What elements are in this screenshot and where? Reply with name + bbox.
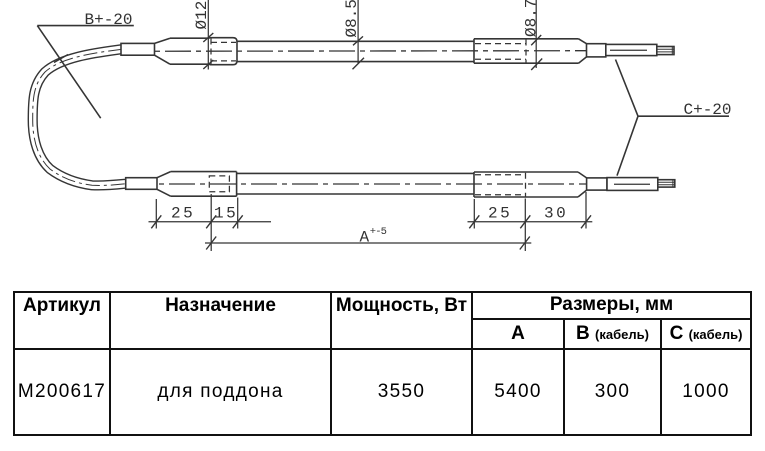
svg-text:15: 15: [214, 205, 238, 223]
svg-text:30: 30: [544, 205, 568, 223]
svg-text:A: A: [360, 229, 370, 247]
svg-text:25: 25: [488, 205, 512, 223]
svg-text:Ø8.7: Ø8.7: [523, 0, 541, 37]
svg-text:+-5: +-5: [370, 226, 387, 238]
svg-text:25: 25: [171, 205, 195, 223]
